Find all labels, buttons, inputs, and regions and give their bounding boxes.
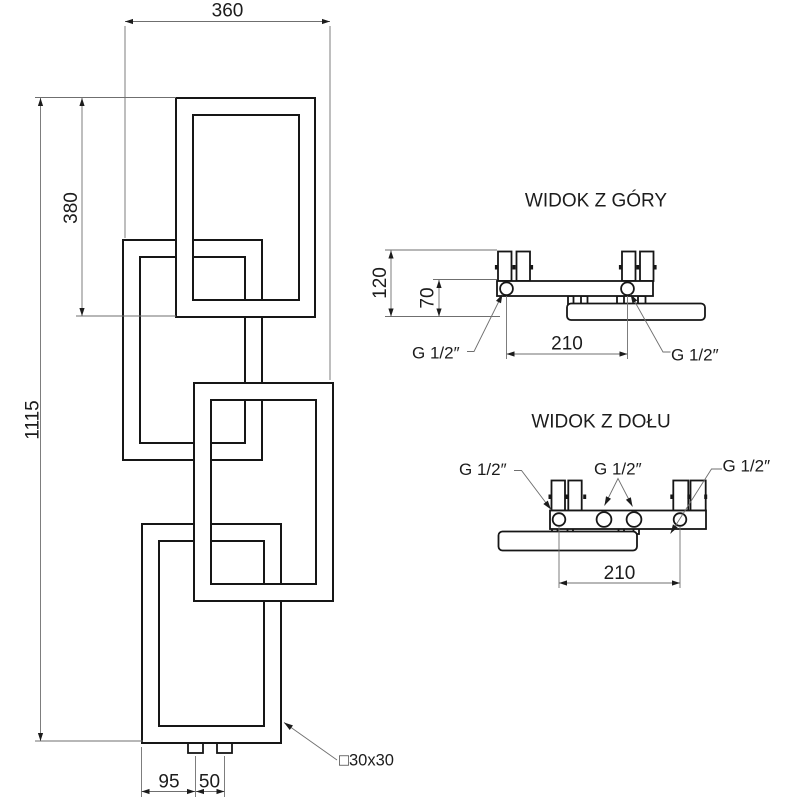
- arrowhead: [602, 496, 611, 507]
- drawing-canvas: 360 380 1115 95: [0, 0, 800, 800]
- tube-end: [622, 252, 636, 282]
- arrowhead: [672, 580, 680, 585]
- front-view: 360 380 1115 95: [23, 1, 394, 798]
- dim-height-380: 380: [35, 98, 176, 317]
- thread-hole-right: [674, 513, 687, 526]
- top-view-title: WIDOK Z GÓRY: [525, 190, 667, 212]
- arrowhead: [388, 309, 393, 317]
- tube-end: [640, 252, 654, 282]
- arrowhead: [388, 251, 393, 259]
- arrowhead: [79, 98, 84, 106]
- clip-mark: [549, 495, 552, 500]
- clip-mark: [619, 265, 622, 270]
- thread-text: G 1/2″: [594, 460, 642, 479]
- dim-offset-70: 70: [418, 280, 498, 317]
- valve-stub-right: [217, 743, 232, 753]
- tube-end: [552, 481, 566, 511]
- dim-95-text: 95: [158, 772, 179, 793]
- clip-mark: [704, 495, 707, 500]
- arrowhead: [436, 280, 441, 288]
- arrowhead: [125, 19, 133, 24]
- arrowhead: [620, 351, 628, 356]
- thread-text: G 1/2″: [412, 344, 460, 363]
- thread-hole-left: [553, 513, 566, 526]
- thread-label-bottom-center: G 1/2″: [594, 460, 642, 508]
- clip-mark: [565, 495, 568, 500]
- dim-360-text: 360: [212, 1, 244, 22]
- dim-210-bottom-text: 210: [604, 563, 636, 584]
- clip-mark: [636, 265, 639, 270]
- radiator-technical-drawing: 360 380 1115 95: [0, 0, 800, 800]
- arrowhead: [142, 789, 150, 794]
- top-view: WIDOK Z GÓRY 120: [370, 190, 719, 365]
- valve-stub-left: [188, 743, 203, 753]
- dim-120-text: 120: [370, 267, 391, 299]
- bottom-view-title: WIDOK Z DOŁU: [531, 412, 670, 433]
- clip-mark: [513, 265, 516, 270]
- arrowhead: [187, 789, 195, 794]
- arrowhead: [322, 19, 330, 24]
- thread-hole-center-left: [597, 512, 612, 527]
- dim-50-text: 50: [199, 772, 220, 793]
- tube-end: [568, 481, 581, 511]
- thread-hole-right: [621, 282, 634, 295]
- leader-line: [467, 294, 503, 352]
- tube-end: [691, 481, 706, 511]
- thread-hole-center-right: [627, 512, 642, 527]
- clip-mark: [583, 495, 586, 500]
- dim-210-top-text: 210: [551, 334, 583, 355]
- dim-70-text: 70: [418, 287, 439, 308]
- arrowhead: [38, 733, 43, 741]
- tube-end: [498, 252, 512, 282]
- profile-label-text: □30x30: [339, 752, 394, 770]
- clip-mark: [654, 265, 657, 270]
- thread-hole-left: [500, 282, 513, 295]
- clip-mark: [670, 495, 673, 500]
- arrowhead: [38, 98, 43, 106]
- arrowhead: [626, 497, 635, 508]
- arrowhead: [559, 580, 567, 585]
- dim-380-text: 380: [61, 192, 82, 224]
- clip-mark: [495, 265, 498, 270]
- thread-label-bottom-left: G 1/2″: [459, 460, 553, 511]
- thread-text: G 1/2″: [459, 460, 507, 479]
- dim-1115-text: 1115: [23, 400, 44, 439]
- clip-mark: [530, 265, 533, 270]
- arrowhead: [282, 720, 293, 730]
- clip-mark: [687, 495, 690, 500]
- leader-line: [284, 723, 337, 761]
- bottom-view: WIDOK Z DOŁU G 1/2″: [459, 412, 770, 589]
- tube-end: [673, 481, 688, 511]
- profile-callout: □30x30: [282, 720, 394, 769]
- thread-text: G 1/2″: [723, 457, 771, 476]
- thread-text: G 1/2″: [671, 346, 719, 365]
- arrowhead: [436, 309, 441, 317]
- leader-line: [605, 479, 633, 507]
- arrowhead: [79, 308, 84, 316]
- arrowhead: [507, 351, 515, 356]
- tube-end: [517, 252, 531, 282]
- dim-connections-95-50: 95 50: [142, 747, 225, 797]
- mounting-plate: [567, 304, 705, 321]
- mounting-plate: [499, 532, 638, 551]
